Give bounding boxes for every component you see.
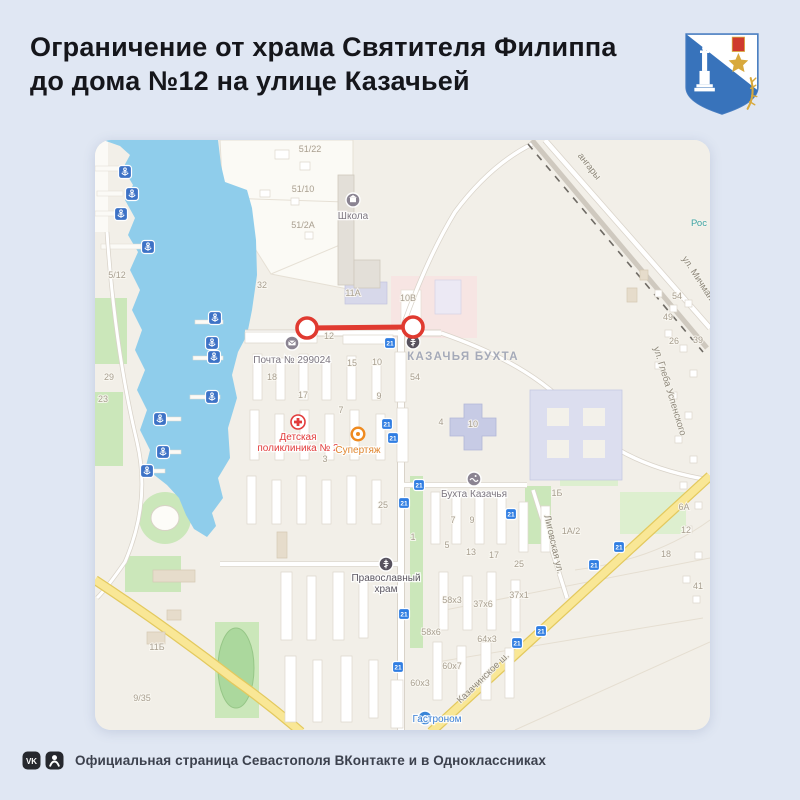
sevastopol-coat-of-arms [683,31,761,117]
gastronom-label: Гастроном [412,714,461,725]
building-number: 1Б [552,488,563,498]
building-number: 7 [338,405,343,415]
bus-route-badge: 21 [536,626,547,637]
building-number: 32 [257,280,267,290]
vk-icon: VK [22,751,41,770]
bus-route-number: 21 [400,500,408,507]
building-number: 11А [345,288,360,298]
anchor-icon [115,208,128,221]
building-number: 58х6 [421,627,441,637]
building-number: 10В [400,293,416,303]
bus-route-number: 21 [415,482,423,489]
building-number: 37х6 [473,599,493,609]
building-number: 6А [678,502,689,512]
restriction-endpoint [297,318,317,338]
bus-route-number: 21 [383,421,391,428]
building-number: 9 [469,515,474,525]
bus-route-number: 21 [386,340,394,347]
church-icon [379,557,393,571]
bus-route-number: 21 [507,511,515,518]
anchor-icon [154,413,167,426]
hospital-complex [530,390,622,480]
building-number: 60х7 [442,661,462,671]
title-line-1: Ограничение от храма Святителя Филиппа [30,30,670,64]
building-number: 9/35 [133,693,151,703]
building-number: 1А/2 [562,526,581,536]
building-number: 54 [410,372,420,382]
building-number: 5/12 [108,270,126,280]
building-number: 41 [693,581,703,591]
footer-text: Официальная страница Севастополя ВКонтак… [75,753,546,768]
anchor-icon [142,241,155,254]
school-building [338,175,354,285]
area-label-layer: КАЗАЧЬЯ БУХТА [407,351,519,363]
building-number: 1 [410,532,415,542]
bus-route-badge: 21 [506,509,517,520]
street-label: Рос [691,218,707,229]
building-number: 11Б [149,642,164,652]
bus-route-badge: 21 [414,480,425,491]
school-label: Школа [338,211,369,222]
bus-route-badge: 21 [399,609,410,620]
building-number: 58х3 [442,595,462,605]
title-line-2: до дома №12 на улице Казачьей [30,64,670,98]
building-number: 51/2А [291,220,315,230]
anchor-icon [157,446,170,459]
children-clinic-label: поликлиника № 2 [257,443,339,454]
building-number: 25 [378,500,388,510]
orthodox-church-label: Православный [351,573,420,584]
bus-route-badge: 21 [385,338,396,349]
restriction-endpoint [403,317,423,337]
building-number: 15 [347,358,357,368]
building-number: 39 [693,335,703,345]
building-number: 17 [489,550,499,560]
ring-icon [352,428,365,441]
bus-route-number: 21 [394,664,402,671]
building-number: 29 [104,372,114,382]
building-number: 12 [324,331,334,341]
post-office-label: Почта № 299024 [253,355,331,366]
children-clinic-label: Детская [279,432,316,443]
anchor-icon [209,312,222,325]
clinic-icon [291,415,305,429]
anchor-icon [206,391,219,404]
svg-text:VK: VK [26,757,37,766]
bus-route-badge: 21 [614,542,625,553]
building-number: 49 [663,312,673,322]
anchor-icon [206,337,219,350]
bus-route-badge: 21 [382,419,393,430]
building-number: 64х3 [477,634,497,644]
building-number: 5 [444,540,449,550]
building-number: 26 [669,336,679,346]
building-number: 13 [466,547,476,557]
building-number: 51/10 [292,184,315,194]
building-number: 4 [438,417,443,427]
poster: Ограничение от храма Святителя Филиппа д… [0,0,800,800]
school-icon [346,193,360,207]
bus-route-badge: 21 [512,638,523,649]
bus-route-number: 21 [389,435,397,442]
hero-star-ribbon [732,37,744,51]
page-title: Ограничение от храма Святителя Филиппа д… [30,30,670,98]
bus-route-number: 21 [615,544,623,551]
bus-route-number: 21 [400,611,408,618]
building-number: 25 [514,559,524,569]
bus-route-badge: 21 [399,498,410,509]
bus-route-number: 21 [590,562,598,569]
building-number: 12 [681,525,691,535]
anchor-icon [119,166,132,179]
post-icon [285,336,299,350]
building-number: 17 [298,390,308,400]
bus-route-badge: 21 [388,433,399,444]
wave-icon [467,472,481,486]
restriction-line [307,327,413,328]
building-number: 54 [672,291,682,301]
bus-route-badge: 21 [589,560,600,571]
building-number: 7 [450,515,455,525]
area-label-kazachya-bukhta: КАЗАЧЬЯ БУХТА [407,351,519,363]
bus-route-number: 21 [537,628,545,635]
building-number: 37х1 [509,590,529,600]
orthodox-church-label: храм [375,584,398,595]
anchor-icon [208,351,221,364]
map-image: ангарыул. Мичманскаяул. Глеба Успенского… [95,140,710,730]
anchor-icon [126,188,139,201]
supertyazh-label: Супертяж [335,445,381,456]
footer: VK Официальная страница Севастополя ВКон… [22,751,546,770]
building-number: 10 [372,357,382,367]
building-number: 18 [661,549,671,559]
building-number: 60х3 [410,678,430,688]
building-number: 3 [322,454,327,464]
building-number: 51/22 [299,144,322,154]
bus-route-badge: 21 [393,662,404,673]
ok-icon [45,751,64,770]
building-number: 9 [376,391,381,401]
building-number: 18 [267,372,277,382]
anchor-icon [141,465,154,478]
building-number: 10 [468,419,478,429]
building-number: 23 [98,394,108,404]
bus-route-number: 21 [513,640,521,647]
bukhta-kazachya-label: Бухта Казачья [441,489,507,500]
